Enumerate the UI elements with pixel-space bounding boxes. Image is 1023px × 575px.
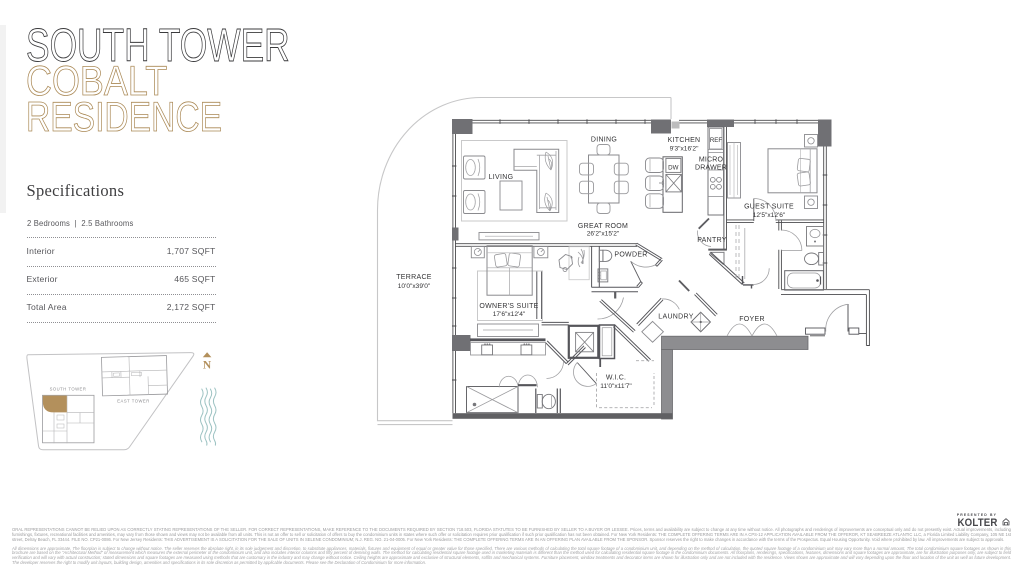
svg-text:LIVING: LIVING [489,174,514,181]
svg-text:OWNER'S SUITE: OWNER'S SUITE [479,303,538,310]
svg-text:SOUTH TOWER: SOUTH TOWER [50,387,87,392]
svg-text:GUEST SUITE: GUEST SUITE [744,204,794,211]
svg-text:TERRACE: TERRACE [396,274,432,281]
svg-text:12'5"x12'6": 12'5"x12'6" [753,212,786,219]
svg-text:N: N [203,360,212,372]
svg-text:DINING: DINING [591,137,617,144]
svg-text:9'3"x16'2": 9'3"x16'2" [670,146,699,153]
svg-text:DRAWER: DRAWER [695,165,727,172]
svg-text:GREAT ROOM: GREAT ROOM [578,223,628,230]
svg-text:10'0"x39'0": 10'0"x39'0" [398,283,431,290]
svg-text:POWDER: POWDER [614,252,647,259]
svg-text:LAUNDRY: LAUNDRY [658,314,693,321]
svg-text:FOYER: FOYER [739,316,765,323]
svg-text:W.I.C.: W.I.C. [606,375,626,382]
svg-text:17'6"x12'4": 17'6"x12'4" [493,311,526,318]
svg-text:KITCHEN: KITCHEN [668,137,701,144]
svg-text:PANTRY: PANTRY [697,237,727,244]
svg-text:11'0"x11'7": 11'0"x11'7" [600,383,632,390]
svg-text:EAST TOWER: EAST TOWER [117,399,149,404]
svg-text:REF: REF [710,137,723,144]
svg-text:MICRO: MICRO [699,157,724,164]
svg-text:26'2"x15'2": 26'2"x15'2" [587,231,620,238]
svg-text:DW: DW [668,164,678,171]
